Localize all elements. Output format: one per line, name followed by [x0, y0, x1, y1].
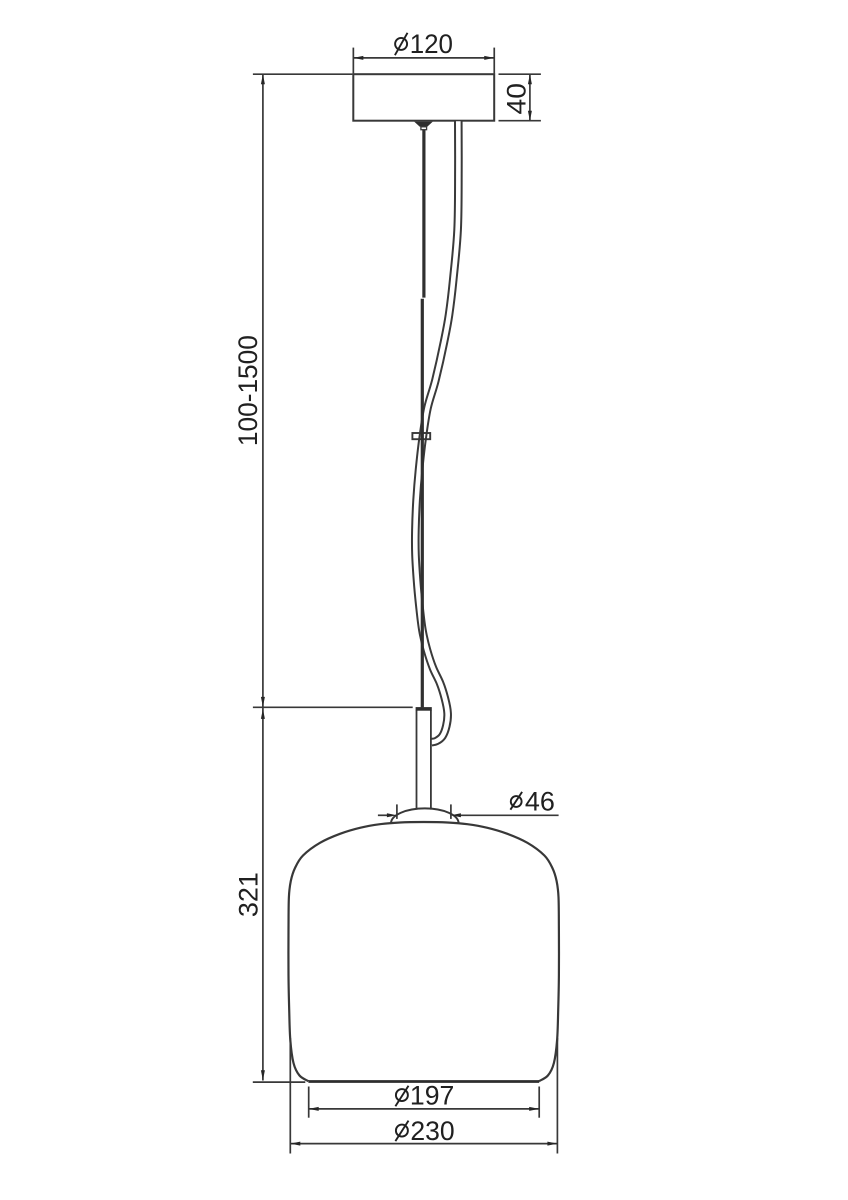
svg-text:46: 46	[525, 787, 555, 817]
svg-text:321: 321	[234, 872, 264, 917]
svg-text:100-1500: 100-1500	[233, 335, 263, 446]
svg-text:40: 40	[501, 83, 531, 115]
svg-text:230: 230	[410, 1116, 454, 1146]
svg-text:197: 197	[410, 1081, 454, 1111]
svg-text:120: 120	[410, 29, 453, 59]
